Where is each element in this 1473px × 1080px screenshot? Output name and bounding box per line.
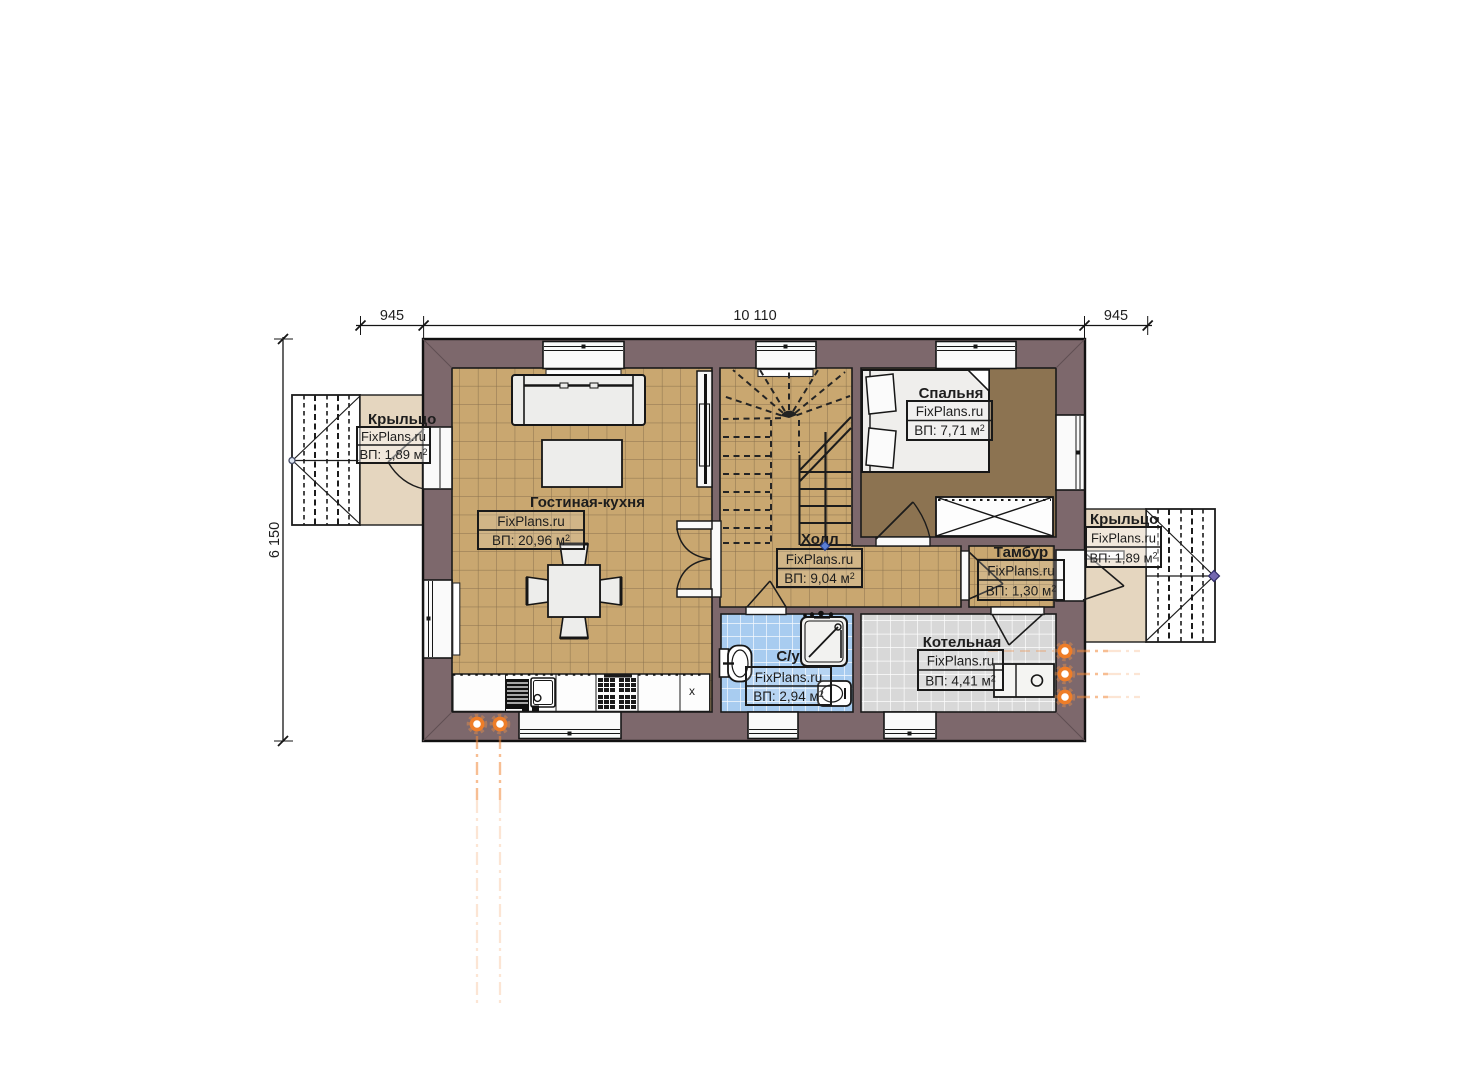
svg-text:Гостиная-кухня: Гостиная-кухня xyxy=(530,494,645,511)
svg-text:FixPlans.ru: FixPlans.ru xyxy=(987,564,1055,579)
svg-text:6 150: 6 150 xyxy=(267,522,283,558)
svg-text:Крыльцо: Крыльцо xyxy=(1090,511,1158,528)
svg-text:FixPlans.ru: FixPlans.ru xyxy=(497,514,565,529)
svg-text:Тамбур: Тамбур xyxy=(994,544,1048,561)
svg-text:10 110: 10 110 xyxy=(733,308,776,324)
svg-text:FixPlans.ru: FixPlans.ru xyxy=(361,429,426,444)
svg-text:Спальня: Спальня xyxy=(919,385,984,402)
svg-text:ВП: 20,96 м2: ВП: 20,96 м2 xyxy=(492,533,570,548)
svg-text:FixPlans.ru: FixPlans.ru xyxy=(786,552,854,567)
svg-text:ВП: 7,71 м2: ВП: 7,71 м2 xyxy=(914,423,985,438)
svg-text:FixPlans.ru: FixPlans.ru xyxy=(755,670,823,685)
svg-text:Котельная: Котельная xyxy=(923,634,1002,651)
svg-text:ВП: 1,30 м2: ВП: 1,30 м2 xyxy=(986,584,1057,599)
svg-text:Крыльцо: Крыльцо xyxy=(368,411,436,428)
svg-text:С/у: С/у xyxy=(776,648,800,665)
svg-text:ВП: 1,89 м2: ВП: 1,89 м2 xyxy=(359,447,427,462)
svg-text:FixPlans.ru: FixPlans.ru xyxy=(927,654,995,669)
svg-text:945: 945 xyxy=(380,308,404,324)
svg-text:Холл: Холл xyxy=(801,531,839,548)
svg-text:945: 945 xyxy=(1104,308,1128,324)
svg-text:x: x xyxy=(689,684,695,698)
svg-text:ВП: 2,94 м2: ВП: 2,94 м2 xyxy=(753,689,824,704)
svg-text:ВП: 4,41 м2: ВП: 4,41 м2 xyxy=(925,674,996,689)
svg-text:ВП: 9,04 м2: ВП: 9,04 м2 xyxy=(784,571,855,586)
svg-text:FixPlans.ru: FixPlans.ru xyxy=(916,404,984,419)
svg-text:ВП: 1,89 м2: ВП: 1,89 м2 xyxy=(1089,551,1157,566)
svg-text:FixPlans.ru: FixPlans.ru xyxy=(1091,531,1156,546)
